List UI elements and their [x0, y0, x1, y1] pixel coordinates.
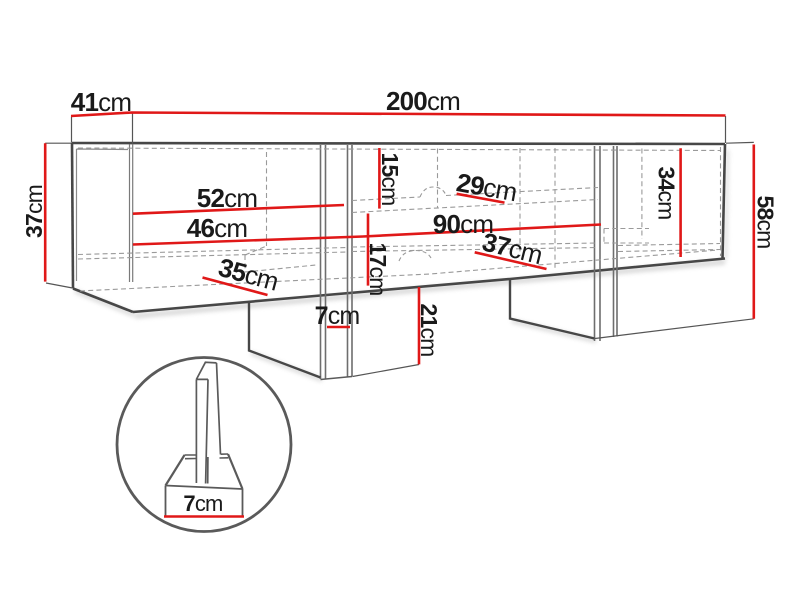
svg-text:7cm: 7cm	[315, 302, 360, 330]
svg-text:7cm: 7cm	[183, 491, 222, 516]
svg-text:34cm: 34cm	[654, 166, 680, 219]
svg-text:200cm: 200cm	[386, 86, 460, 116]
svg-text:46cm: 46cm	[187, 213, 247, 243]
svg-text:58cm: 58cm	[753, 195, 779, 248]
svg-text:21cm: 21cm	[416, 303, 442, 356]
svg-text:41cm: 41cm	[71, 87, 131, 117]
svg-text:37cm: 37cm	[21, 185, 47, 238]
svg-text:52cm: 52cm	[197, 183, 257, 213]
svg-text:17cm: 17cm	[365, 242, 391, 295]
svg-text:15cm: 15cm	[377, 152, 403, 205]
